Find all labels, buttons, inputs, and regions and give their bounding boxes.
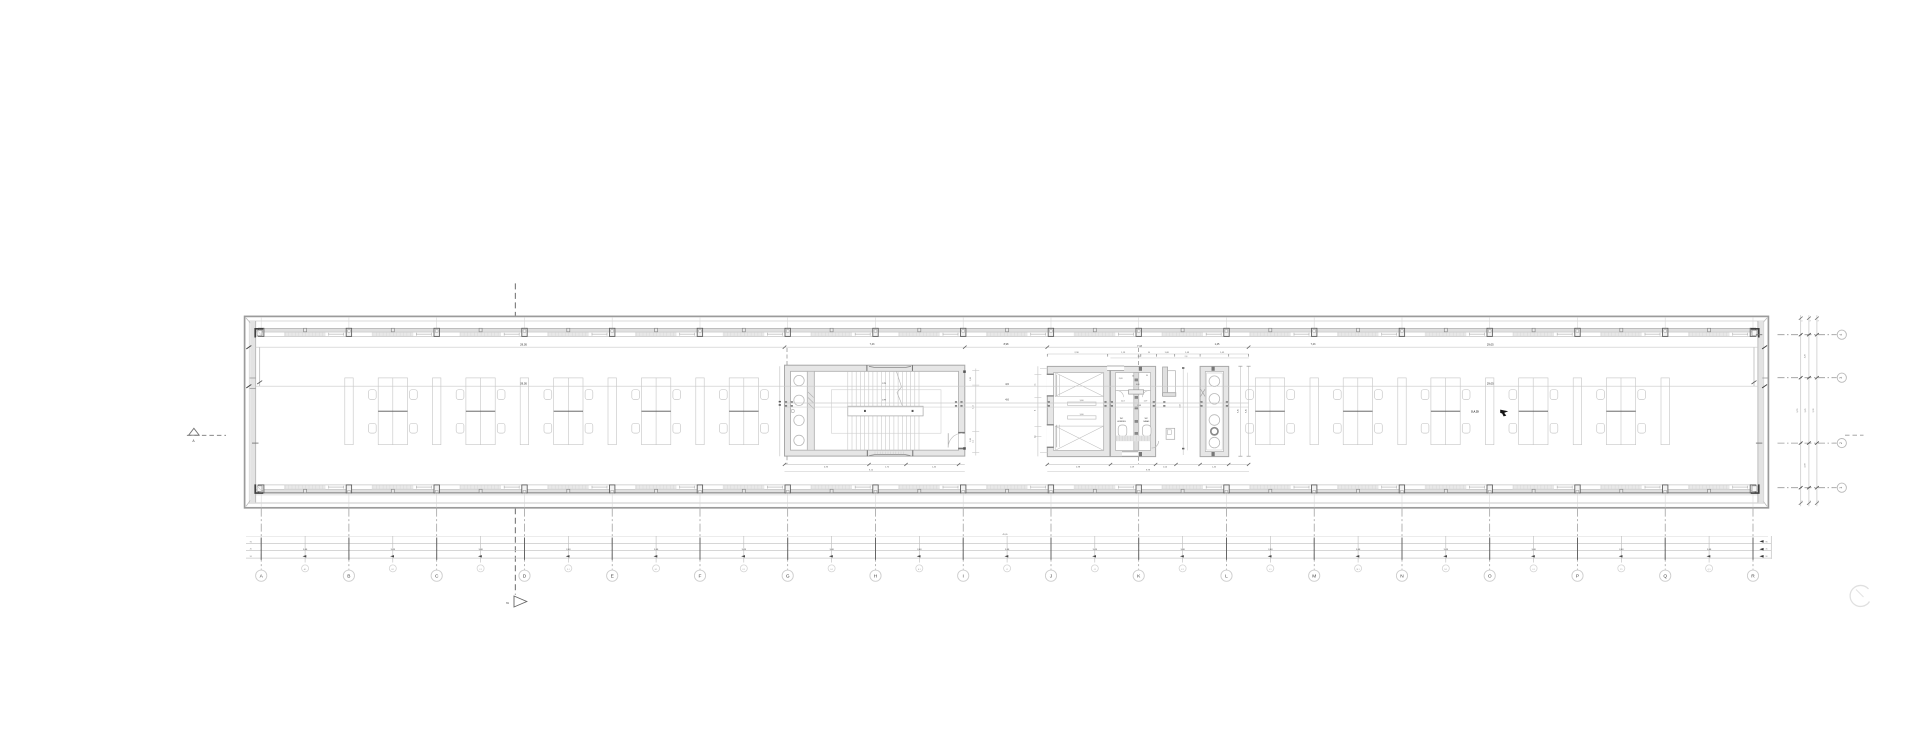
svg-text:1: 1 bbox=[1839, 487, 1843, 489]
svg-text:5: 5 bbox=[1810, 501, 1812, 502]
svg-text:50: 50 bbox=[1148, 352, 1150, 354]
svg-text:17R: 17R bbox=[882, 383, 886, 385]
svg-text:H.1: H.1 bbox=[918, 569, 921, 571]
svg-text:96: 96 bbox=[250, 542, 252, 544]
svg-text:N.1: N.1 bbox=[1444, 569, 1447, 571]
svg-text:96: 96 bbox=[250, 556, 252, 558]
svg-text:45,05: 45,05 bbox=[1002, 534, 1008, 536]
svg-text:4: 4 bbox=[1034, 410, 1036, 411]
svg-text:J.1: J.1 bbox=[1094, 569, 1096, 571]
svg-text:8,45: 8,45 bbox=[1237, 409, 1239, 413]
svg-text:4,6: 4,6 bbox=[1005, 382, 1009, 386]
svg-text:2,8: 2,8 bbox=[1185, 356, 1188, 358]
svg-text:2,8: 2,8 bbox=[1138, 356, 1141, 358]
svg-text:4: 4 bbox=[1839, 334, 1843, 336]
svg-text:O: O bbox=[1488, 574, 1492, 580]
svg-text:A.1: A.1 bbox=[304, 568, 307, 571]
svg-text:1,50: 1,50 bbox=[1180, 404, 1182, 408]
svg-text:4,6: 4,6 bbox=[1005, 398, 1009, 402]
svg-text:L.1: L.1 bbox=[1269, 569, 1272, 571]
svg-text:G.1: G.1 bbox=[830, 569, 833, 571]
svg-text:90: 90 bbox=[1146, 375, 1148, 377]
svg-text:DAMAS: DAMAS bbox=[1143, 420, 1150, 423]
svg-text:G: G bbox=[786, 574, 790, 580]
svg-text:5: 5 bbox=[1818, 501, 1820, 502]
svg-text:R: R bbox=[1751, 574, 1755, 580]
svg-text:5,5: 5,5 bbox=[1034, 435, 1036, 438]
svg-text:1,13: 1,13 bbox=[1121, 400, 1125, 402]
svg-text:2,88: 2,88 bbox=[970, 377, 972, 381]
svg-text:F: F bbox=[699, 574, 702, 580]
svg-text:E: E bbox=[611, 574, 614, 580]
svg-text:B.1: B.1 bbox=[391, 569, 394, 571]
svg-text:O.1: O.1 bbox=[1532, 569, 1535, 571]
svg-text:45: 45 bbox=[1766, 548, 1768, 550]
svg-text:H: H bbox=[874, 574, 878, 580]
svg-text:29,05: 29,05 bbox=[1487, 382, 1494, 386]
svg-text:50: 50 bbox=[1132, 376, 1134, 378]
svg-text:1,45: 1,45 bbox=[1215, 343, 1220, 346]
svg-text:5: 5 bbox=[1810, 320, 1812, 321]
svg-text:1,5: 1,5 bbox=[973, 440, 975, 443]
svg-text:2: 2 bbox=[1839, 442, 1843, 444]
svg-text:17R: 17R bbox=[882, 400, 886, 402]
svg-text:M: M bbox=[1312, 574, 1316, 580]
svg-text:I: I bbox=[963, 574, 964, 580]
svg-text:P.1: P.1 bbox=[1620, 569, 1622, 571]
svg-text:C.1: C.1 bbox=[479, 569, 482, 571]
svg-text:N: N bbox=[1400, 574, 1404, 580]
svg-text:M.1: M.1 bbox=[1357, 569, 1360, 571]
svg-text:K.1: K.1 bbox=[1181, 569, 1184, 571]
svg-text:96: 96 bbox=[1766, 556, 1768, 558]
svg-text:F.1: F.1 bbox=[743, 569, 745, 571]
svg-text:4,06: 4,06 bbox=[1136, 384, 1140, 386]
svg-text:L: L bbox=[1225, 574, 1228, 580]
svg-text:S.A.25: S.A.25 bbox=[1471, 410, 1479, 413]
svg-text:5: 5 bbox=[1818, 320, 1820, 321]
svg-text:E.1: E.1 bbox=[655, 569, 658, 571]
svg-text:1,77: 1,77 bbox=[1144, 400, 1148, 402]
svg-text:D.1: D.1 bbox=[567, 569, 570, 571]
svg-text:29,05: 29,05 bbox=[520, 342, 527, 346]
svg-text:5: 5 bbox=[1802, 501, 1804, 502]
svg-text:2,63: 2,63 bbox=[1119, 378, 1123, 380]
svg-text:8,45: 8,45 bbox=[1246, 409, 1248, 413]
svg-text:P: P bbox=[1576, 574, 1579, 580]
svg-text:I.1: I.1 bbox=[1006, 569, 1008, 571]
svg-text:29,05: 29,05 bbox=[520, 382, 527, 386]
svg-text:B: B bbox=[347, 574, 350, 580]
svg-text:3: 3 bbox=[1839, 377, 1843, 379]
svg-text:HOMBRES: HOMBRES bbox=[1117, 421, 1126, 423]
svg-text:Q.1: Q.1 bbox=[1708, 569, 1711, 571]
svg-text:2,88: 2,88 bbox=[970, 438, 972, 442]
svg-text:C: C bbox=[435, 574, 439, 580]
svg-text:45: 45 bbox=[250, 548, 252, 550]
svg-text:7,43: 7,43 bbox=[870, 343, 875, 346]
svg-text:29,05: 29,05 bbox=[1487, 342, 1494, 346]
svg-text:D: D bbox=[523, 574, 527, 580]
svg-text:Q: Q bbox=[1663, 574, 1667, 580]
svg-text:8,98: 8,98 bbox=[1004, 343, 1009, 346]
svg-text:7,43: 7,43 bbox=[1311, 343, 1316, 346]
svg-text:96: 96 bbox=[1766, 542, 1768, 544]
svg-text:5: 5 bbox=[1802, 320, 1804, 321]
